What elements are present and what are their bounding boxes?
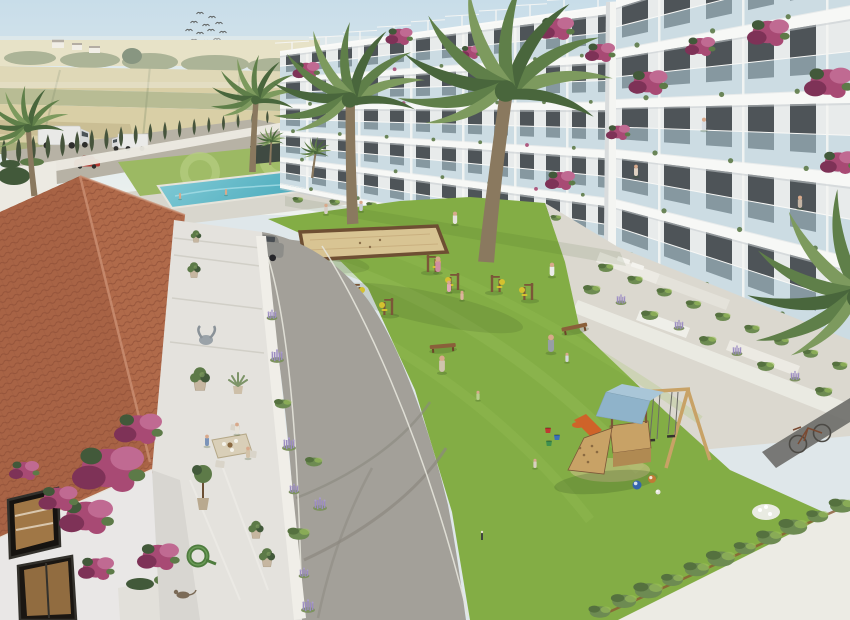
- toy-bucket: [545, 427, 551, 433]
- bougainvillea: [820, 151, 850, 174]
- petanque-sand-court: [300, 226, 447, 260]
- bougainvillea: [804, 68, 850, 98]
- ball: [656, 490, 661, 495]
- ball: [648, 475, 656, 483]
- toy-bucket: [546, 440, 552, 446]
- ball: [633, 481, 642, 490]
- hedge-shrub: [829, 499, 850, 513]
- render-image: [0, 0, 850, 620]
- scene-illustration: [0, 0, 850, 620]
- light-bollard: [481, 532, 483, 540]
- toy-bucket: [554, 434, 560, 440]
